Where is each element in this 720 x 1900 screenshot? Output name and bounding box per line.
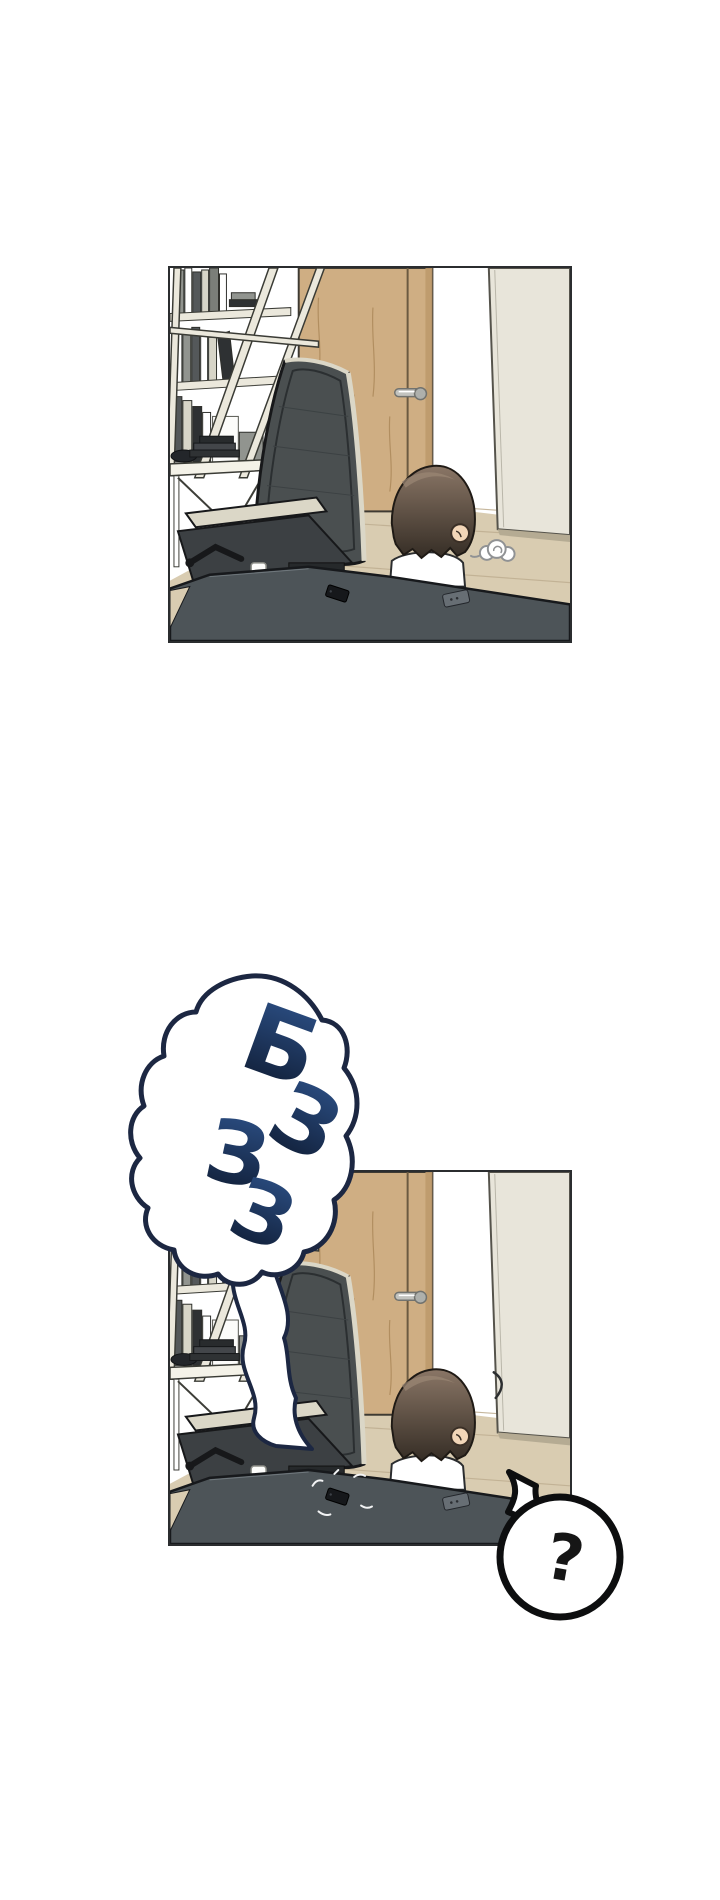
comic-page: { "page": { "width": 720, "height": 1900… — [0, 0, 720, 1900]
sfx-letter-1: Б — [228, 983, 333, 1110]
sfx-letter-2: З — [252, 1061, 358, 1184]
room-scene — [170, 1172, 570, 1544]
comic-panel-1 — [168, 266, 572, 643]
comic-panel-2 — [168, 1170, 572, 1546]
room-scene — [170, 268, 570, 641]
